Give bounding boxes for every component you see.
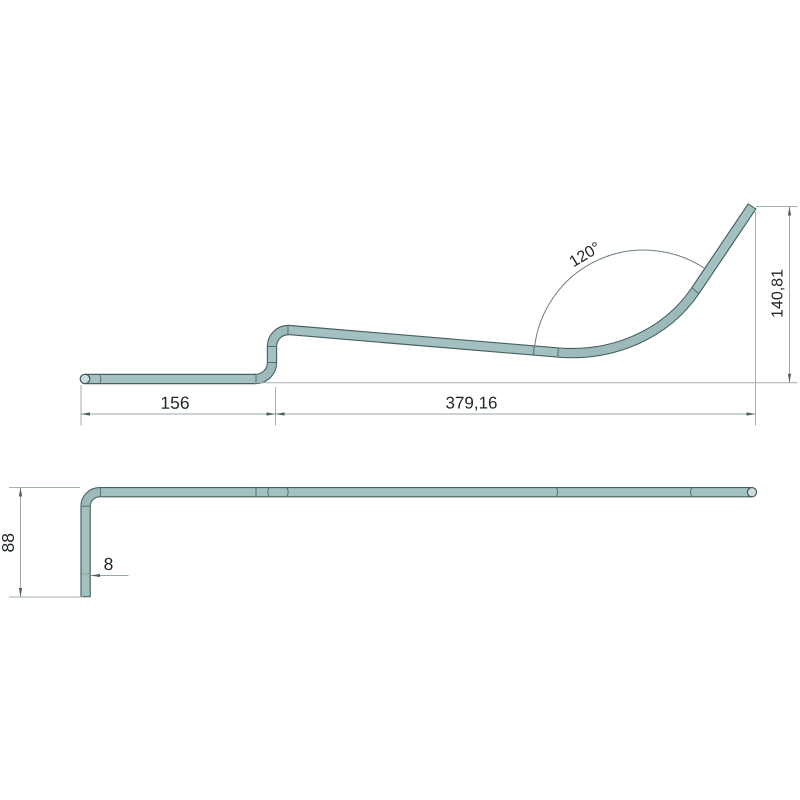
svg-text:8: 8 [104, 554, 114, 574]
svg-text:156: 156 [160, 393, 189, 413]
svg-text:88: 88 [0, 533, 18, 552]
svg-text:140,81: 140,81 [770, 269, 787, 318]
svg-text:379,16: 379,16 [445, 393, 497, 412]
